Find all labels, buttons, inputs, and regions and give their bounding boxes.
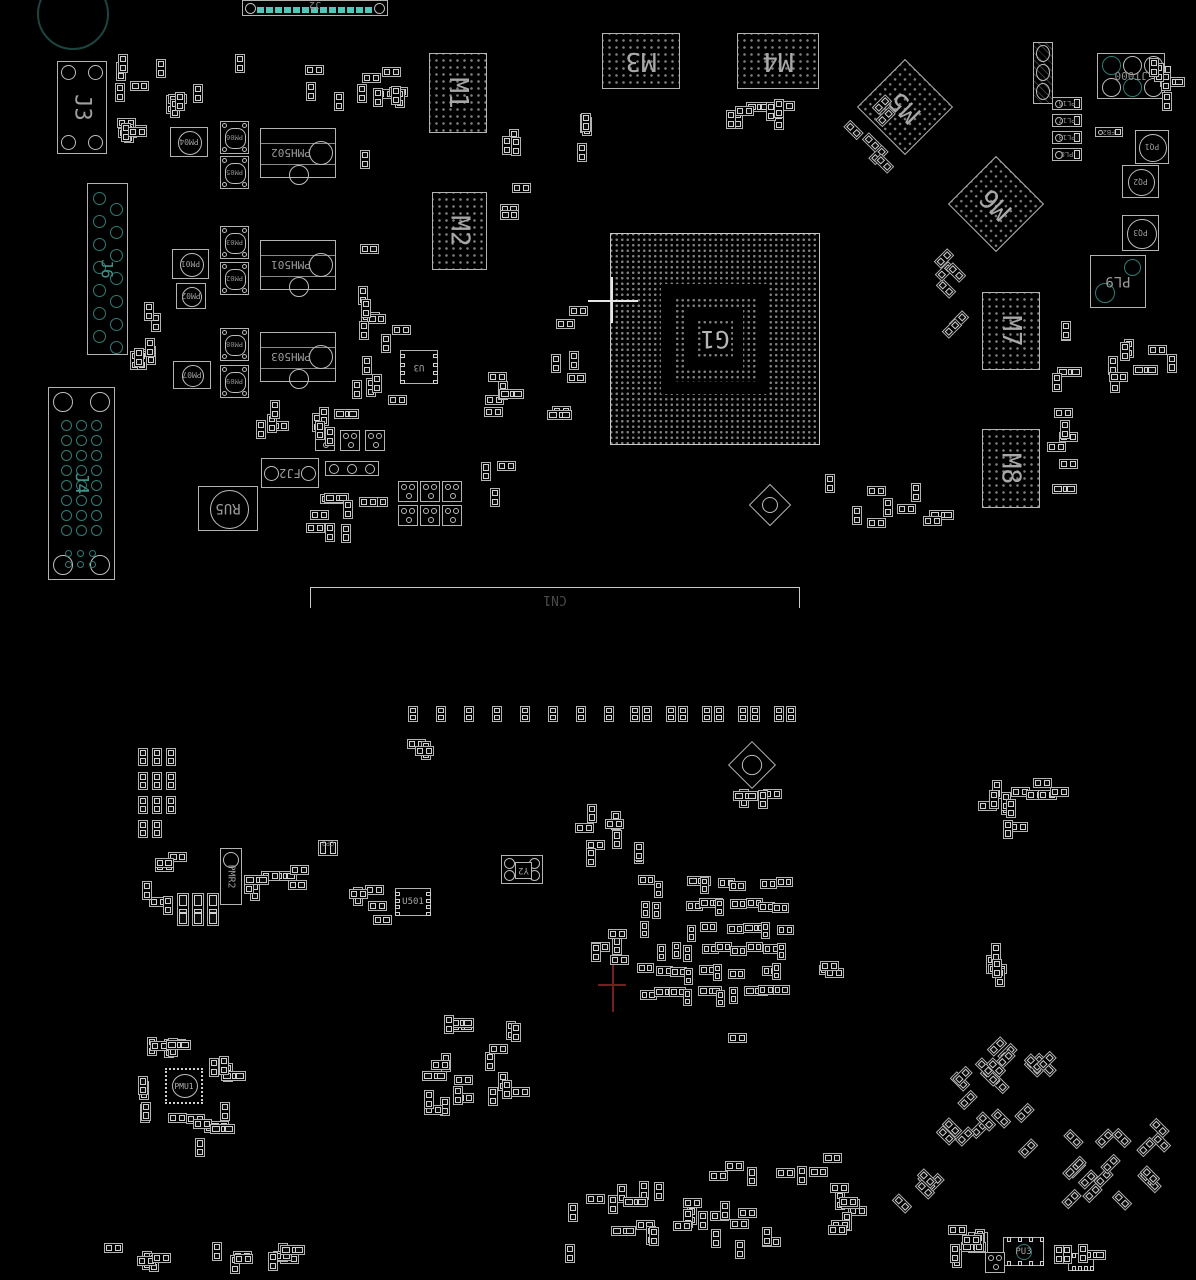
chip [1060,420,1070,439]
chip [777,943,786,960]
j4-hole [76,480,87,491]
chip-pad [689,927,694,932]
component-pq3: PQ3 [1122,215,1159,251]
chip-pad [362,152,368,158]
chip-pad [702,879,707,884]
chip [577,143,587,162]
chip [709,1171,728,1181]
chip-pad [668,708,674,713]
chip-pad [647,965,652,971]
j6-hole [93,238,106,251]
j6-hole [93,284,106,297]
chip-pad [621,957,627,963]
chip-pad [165,860,171,866]
chip-pad [501,391,509,397]
chip [156,59,166,78]
ind-pad [222,252,227,257]
chip-pad [378,316,384,322]
chip [270,400,280,419]
chip-pad [370,499,376,505]
chip-pad [359,86,365,92]
chip-pad [938,281,947,290]
chip [591,943,601,962]
chip-pad [317,525,323,531]
chip-pad [885,500,891,506]
trimmer-slot [738,751,765,778]
component-pm08: PM08 [220,328,249,361]
chip-pad [717,944,722,950]
chip-pad [209,895,217,906]
chip-pad [832,1185,838,1191]
chip [652,902,661,919]
chip-pad [168,1042,176,1048]
chip-pad [316,67,322,73]
chip-pad [1056,1247,1062,1253]
chip-pad [1114,1193,1123,1202]
chip-pad [360,288,366,294]
chip-pad [363,301,369,307]
chip-pad [1159,347,1165,353]
j6-hole [110,341,123,354]
chip [138,820,148,838]
component-m1: M1 [429,53,487,133]
pl9-hole [1095,283,1115,303]
chip-pad [1158,1127,1167,1136]
j2-pad [338,7,345,13]
component-fb2: FB2 [1095,127,1123,137]
rt-hole [329,464,339,474]
chip-pad [871,142,880,151]
chip-pad [716,708,722,713]
chip [1136,1137,1157,1158]
j3-hole [61,65,76,80]
chip [130,81,149,91]
rt-hole [365,464,375,474]
chip-pad [359,95,365,101]
chip [1003,820,1013,839]
chip-pad [308,84,314,90]
chip-pad [504,1091,510,1097]
chip-pad [146,313,152,319]
chip-pad [513,148,519,154]
chip-pad [943,251,952,260]
chip-pad [875,103,884,112]
chip-pad [194,895,202,906]
chip-pad [553,356,559,362]
chip-pad [301,867,307,873]
chip-pad [685,954,690,959]
chip [638,875,655,885]
chip-pad [811,1169,817,1175]
chip-pad [1120,374,1126,380]
chip [235,54,245,73]
chip [776,877,793,887]
chip-pad [998,1083,1007,1092]
chip-pad [1070,461,1076,467]
chip-pad [715,966,720,971]
chip-pad [490,1098,496,1104]
chip-pad [117,85,123,91]
chip-pad [511,212,517,218]
chip-pad [589,814,595,820]
component-sot [340,430,360,451]
chip-pad [934,518,940,524]
chip-pad [774,973,779,978]
sot-pin [453,508,459,514]
chip-pad [1120,1200,1129,1209]
chip [565,1244,575,1263]
chip-pad [140,798,146,804]
ind-pad [242,158,247,163]
ind-coil [1128,169,1155,196]
chip-pad [579,145,585,151]
chip-pad [384,69,390,75]
chip [883,498,893,517]
chip-pad [788,715,794,720]
chip-pad [715,973,720,978]
chip-pad [500,1046,506,1052]
chip-pad [1096,1252,1104,1258]
chip-pad [619,1186,625,1192]
chip-pad [361,332,367,338]
chip [989,790,999,809]
ind-core [225,269,246,290]
chip-pad [749,1178,755,1184]
chip [683,989,692,1006]
chip-pad [1072,1138,1081,1147]
j6-hole [110,295,123,308]
chip [489,1044,508,1054]
label-m4: M4 [738,34,818,88]
chip [511,137,521,156]
ind-pad [242,228,247,233]
chip-pad [614,938,620,944]
chip-pad [748,793,756,799]
ic-pin [1084,1266,1088,1271]
pmh-coil [309,345,333,369]
chip-pad [740,708,746,713]
chip [729,881,746,891]
connector-j4: J4 [48,387,115,580]
chip [145,338,155,357]
chip-pad [1028,792,1034,798]
chip-pad [364,367,370,373]
chip [957,1090,978,1111]
chip [568,1203,578,1222]
chip-pad [1121,1137,1130,1146]
chip-pad [850,1199,856,1205]
pl9-hole [1124,259,1141,276]
ic-pin [1018,1261,1022,1266]
chip-pad [1135,367,1143,373]
ic-pin [400,354,405,358]
ind-coil [178,131,202,155]
chip-pad [417,748,423,754]
chip-pad [1096,1177,1105,1186]
chip-pad [403,327,409,333]
chip [654,881,663,898]
chip-pad [1080,1246,1086,1252]
chip-pad [685,991,690,996]
sot-pin [445,484,451,490]
chip [569,351,579,370]
chip-pad [1064,1198,1073,1207]
chip-pad [770,881,775,887]
chip-pad [745,793,749,799]
chip [657,944,666,961]
chip-pad [523,185,529,191]
chip-pad [553,365,559,371]
chip-pad [571,353,577,359]
ind-pad [222,228,227,233]
chip [747,1167,757,1186]
chip-pad [701,967,706,973]
pl-end [1115,129,1121,135]
chip-pad [522,708,528,713]
chip-pad [426,748,432,754]
chip-pad [1056,1256,1062,1262]
j2-pad [311,7,318,13]
chip-pad [283,873,287,879]
chip-pad [952,1246,958,1252]
chip-pad [143,1112,149,1118]
sot-pin [351,433,357,439]
ic-pin [395,912,400,916]
chip-pad [694,1200,700,1206]
chip [422,1071,447,1081]
chip-pad [522,715,528,720]
chip [729,987,738,1004]
chip-pad [597,842,603,848]
chip-pad [494,708,500,713]
chip [551,354,561,373]
label-y2: Y2 [516,863,531,878]
chip-pad [168,798,174,804]
chip-pad [336,495,340,501]
chip-pad [702,886,707,891]
chip-pad [643,910,648,915]
chip [1061,1189,1082,1210]
chip-pad [991,801,997,807]
chip [490,488,500,507]
j4-hole [76,510,87,521]
chip [207,893,219,926]
sot-pin [431,508,437,514]
chip-pad [375,90,381,96]
chip [604,706,614,722]
chip [368,901,387,911]
j6-hole [93,192,106,205]
chip-pad [1164,103,1170,109]
chip-pad [957,1135,966,1144]
chip-pad [776,110,782,116]
component-pmr2: PMR2 [220,848,242,905]
component-coil [1033,42,1053,104]
chip-pad [179,913,187,924]
chip-pad [236,1256,242,1262]
sot-pin [343,433,349,439]
component-pm07: PM07 [173,361,211,389]
chip-pad [270,1263,276,1269]
chip-pad [644,715,650,720]
chip-pad [642,992,647,998]
pcb-board: M1M2M3M4M5M6M7M8G1J2J3J6J4CN1PL9JT000PM0… [0,0,1196,1280]
chip-pad [1054,384,1060,390]
chip-pad [1064,1247,1070,1253]
chip-pad [312,512,318,518]
chip-pad [958,313,967,322]
ic-pin [1007,1237,1011,1242]
chip-pad [308,525,314,531]
chip-pad [625,1199,633,1205]
chip-pad [194,909,202,913]
chip [499,389,524,399]
chip [219,1056,229,1075]
chip [828,1225,847,1235]
component-pmh501: PMH501 [260,240,336,290]
chip [730,1219,749,1229]
chip-pad [567,1255,573,1261]
chip-pad [713,1231,719,1237]
chip-pad [764,1229,770,1235]
chip-pad [1064,1256,1070,1262]
j2-pad [293,7,300,13]
chip-pad [513,1089,519,1095]
chip [576,706,586,722]
chip-pad [1017,1111,1026,1120]
chip [809,1167,828,1177]
chip [360,244,379,254]
chip-pad [317,423,323,429]
chip-pad [153,315,159,321]
chip-pad [1087,1172,1096,1181]
chip-pad [269,425,275,431]
chip-pad [844,1214,850,1220]
chip-pad [383,336,389,342]
chip-pad [1114,1130,1123,1139]
chip-pad [1070,1192,1079,1201]
chip-pad [944,512,952,518]
chip [702,706,712,722]
chip-pad [117,94,123,100]
chip-pad [379,903,385,909]
j2-pad [329,7,336,13]
chip [431,1060,450,1070]
chip-pad [787,1170,793,1176]
j4-hole [61,480,72,491]
chip-pad [1066,1131,1075,1140]
chip-pad [494,715,500,720]
chip-pad [729,926,734,932]
label-u501: U501 [396,889,430,915]
chip-pad [1056,410,1062,416]
chip [774,706,784,722]
j4-hole [61,495,72,506]
chip-pad [320,842,326,854]
chip [586,1194,605,1204]
chip-pad [830,1227,836,1233]
chip-pad [955,1075,964,1084]
chip-pad [827,485,833,491]
chip-pad [700,988,708,994]
chip [118,54,128,73]
chip-pad [139,1258,145,1264]
chip-pad [578,708,584,713]
label-j4: J4 [0,451,177,516]
chip-pad [154,758,160,764]
component-sot [420,481,440,502]
chip-pad [636,853,642,859]
chip-pad [140,1078,146,1084]
sot-pin [406,493,412,499]
chip-pad [455,1088,461,1094]
pmh-coil [309,141,333,165]
pmh-coil [289,369,309,389]
chip-pad [1151,60,1157,66]
chip-pad [960,1099,969,1108]
chip-pad [638,1199,646,1205]
chip-pad [426,1101,432,1107]
chip-pad [768,113,774,119]
chip-pad [513,1034,519,1040]
chip [611,1226,636,1236]
chip-pad [154,750,160,756]
origin-cross-h [588,300,638,302]
chip-pad [749,1169,755,1175]
origin-cross-v [611,277,613,323]
j4-hole [65,561,72,568]
chip [502,1080,512,1099]
chip [1133,365,1158,375]
chip-pad [437,1073,445,1079]
chip-pad [717,909,722,914]
chip-pad [711,1173,717,1179]
chip [797,1166,807,1185]
chip-pad [136,359,142,365]
chip [825,474,835,493]
sot-pin [401,508,407,514]
chip-pad [130,129,136,135]
g1-center: G1 [701,324,729,354]
chip-pad [680,715,686,720]
chip [155,858,174,868]
chip-pad [779,945,784,950]
chip-pad [343,534,349,540]
chip-pad [197,1140,203,1146]
chip-pad [375,99,381,105]
chip [360,150,370,169]
chip-pad [731,996,736,1001]
ic-pin [1029,1237,1033,1242]
chip-pad [597,1196,603,1202]
chip [1018,1138,1039,1159]
chip-pad [567,1246,573,1252]
chip [1111,1127,1132,1148]
chip-pad [702,924,707,930]
chip-pad [170,1115,176,1121]
component-u3: U3 [400,350,438,384]
label-j6: J6 [23,250,193,289]
chip-pad [336,411,344,417]
chip-pad [716,715,722,720]
chip [867,518,886,528]
chip [608,1195,618,1214]
chip [678,706,688,722]
chip-pad [1020,824,1026,830]
chip-pad [606,715,612,720]
chip-pad [732,948,737,954]
chip-pad [997,979,1003,985]
